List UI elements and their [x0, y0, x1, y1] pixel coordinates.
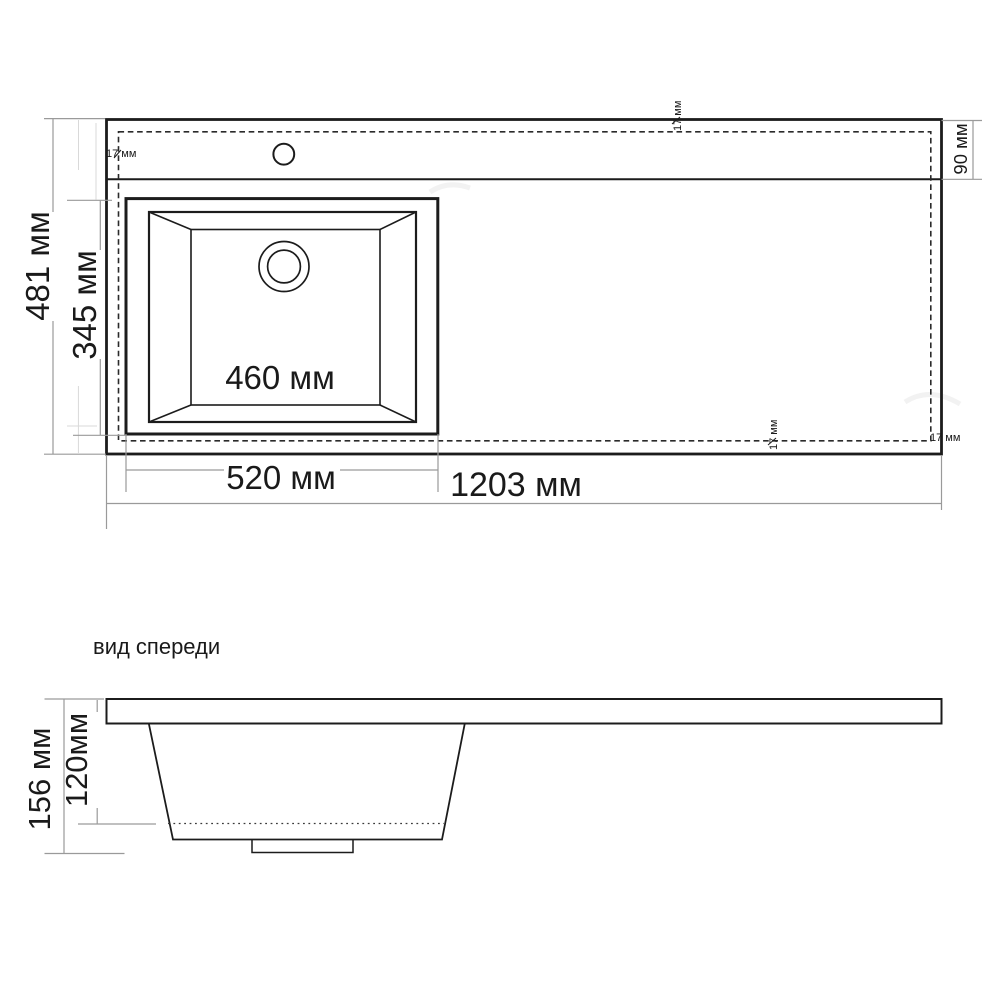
svg-text:17 мм: 17 мм — [930, 432, 960, 444]
svg-text:1203 мм: 1203 мм — [450, 466, 582, 504]
svg-text:156 мм: 156 мм — [22, 728, 57, 831]
svg-text:460 мм: 460 мм — [225, 359, 335, 396]
svg-text:вид спереди: вид спереди — [93, 634, 220, 659]
svg-text:90 мм: 90 мм — [950, 123, 971, 174]
svg-text:120мм: 120мм — [59, 713, 94, 807]
svg-text:345 мм: 345 мм — [66, 250, 103, 360]
svg-text:17 мм: 17 мм — [768, 420, 780, 450]
svg-text:17 мм: 17 мм — [672, 101, 684, 131]
svg-text:481 мм: 481 мм — [19, 211, 56, 321]
svg-text:520 мм: 520 мм — [226, 459, 336, 496]
svg-text:17 мм: 17 мм — [106, 148, 136, 160]
